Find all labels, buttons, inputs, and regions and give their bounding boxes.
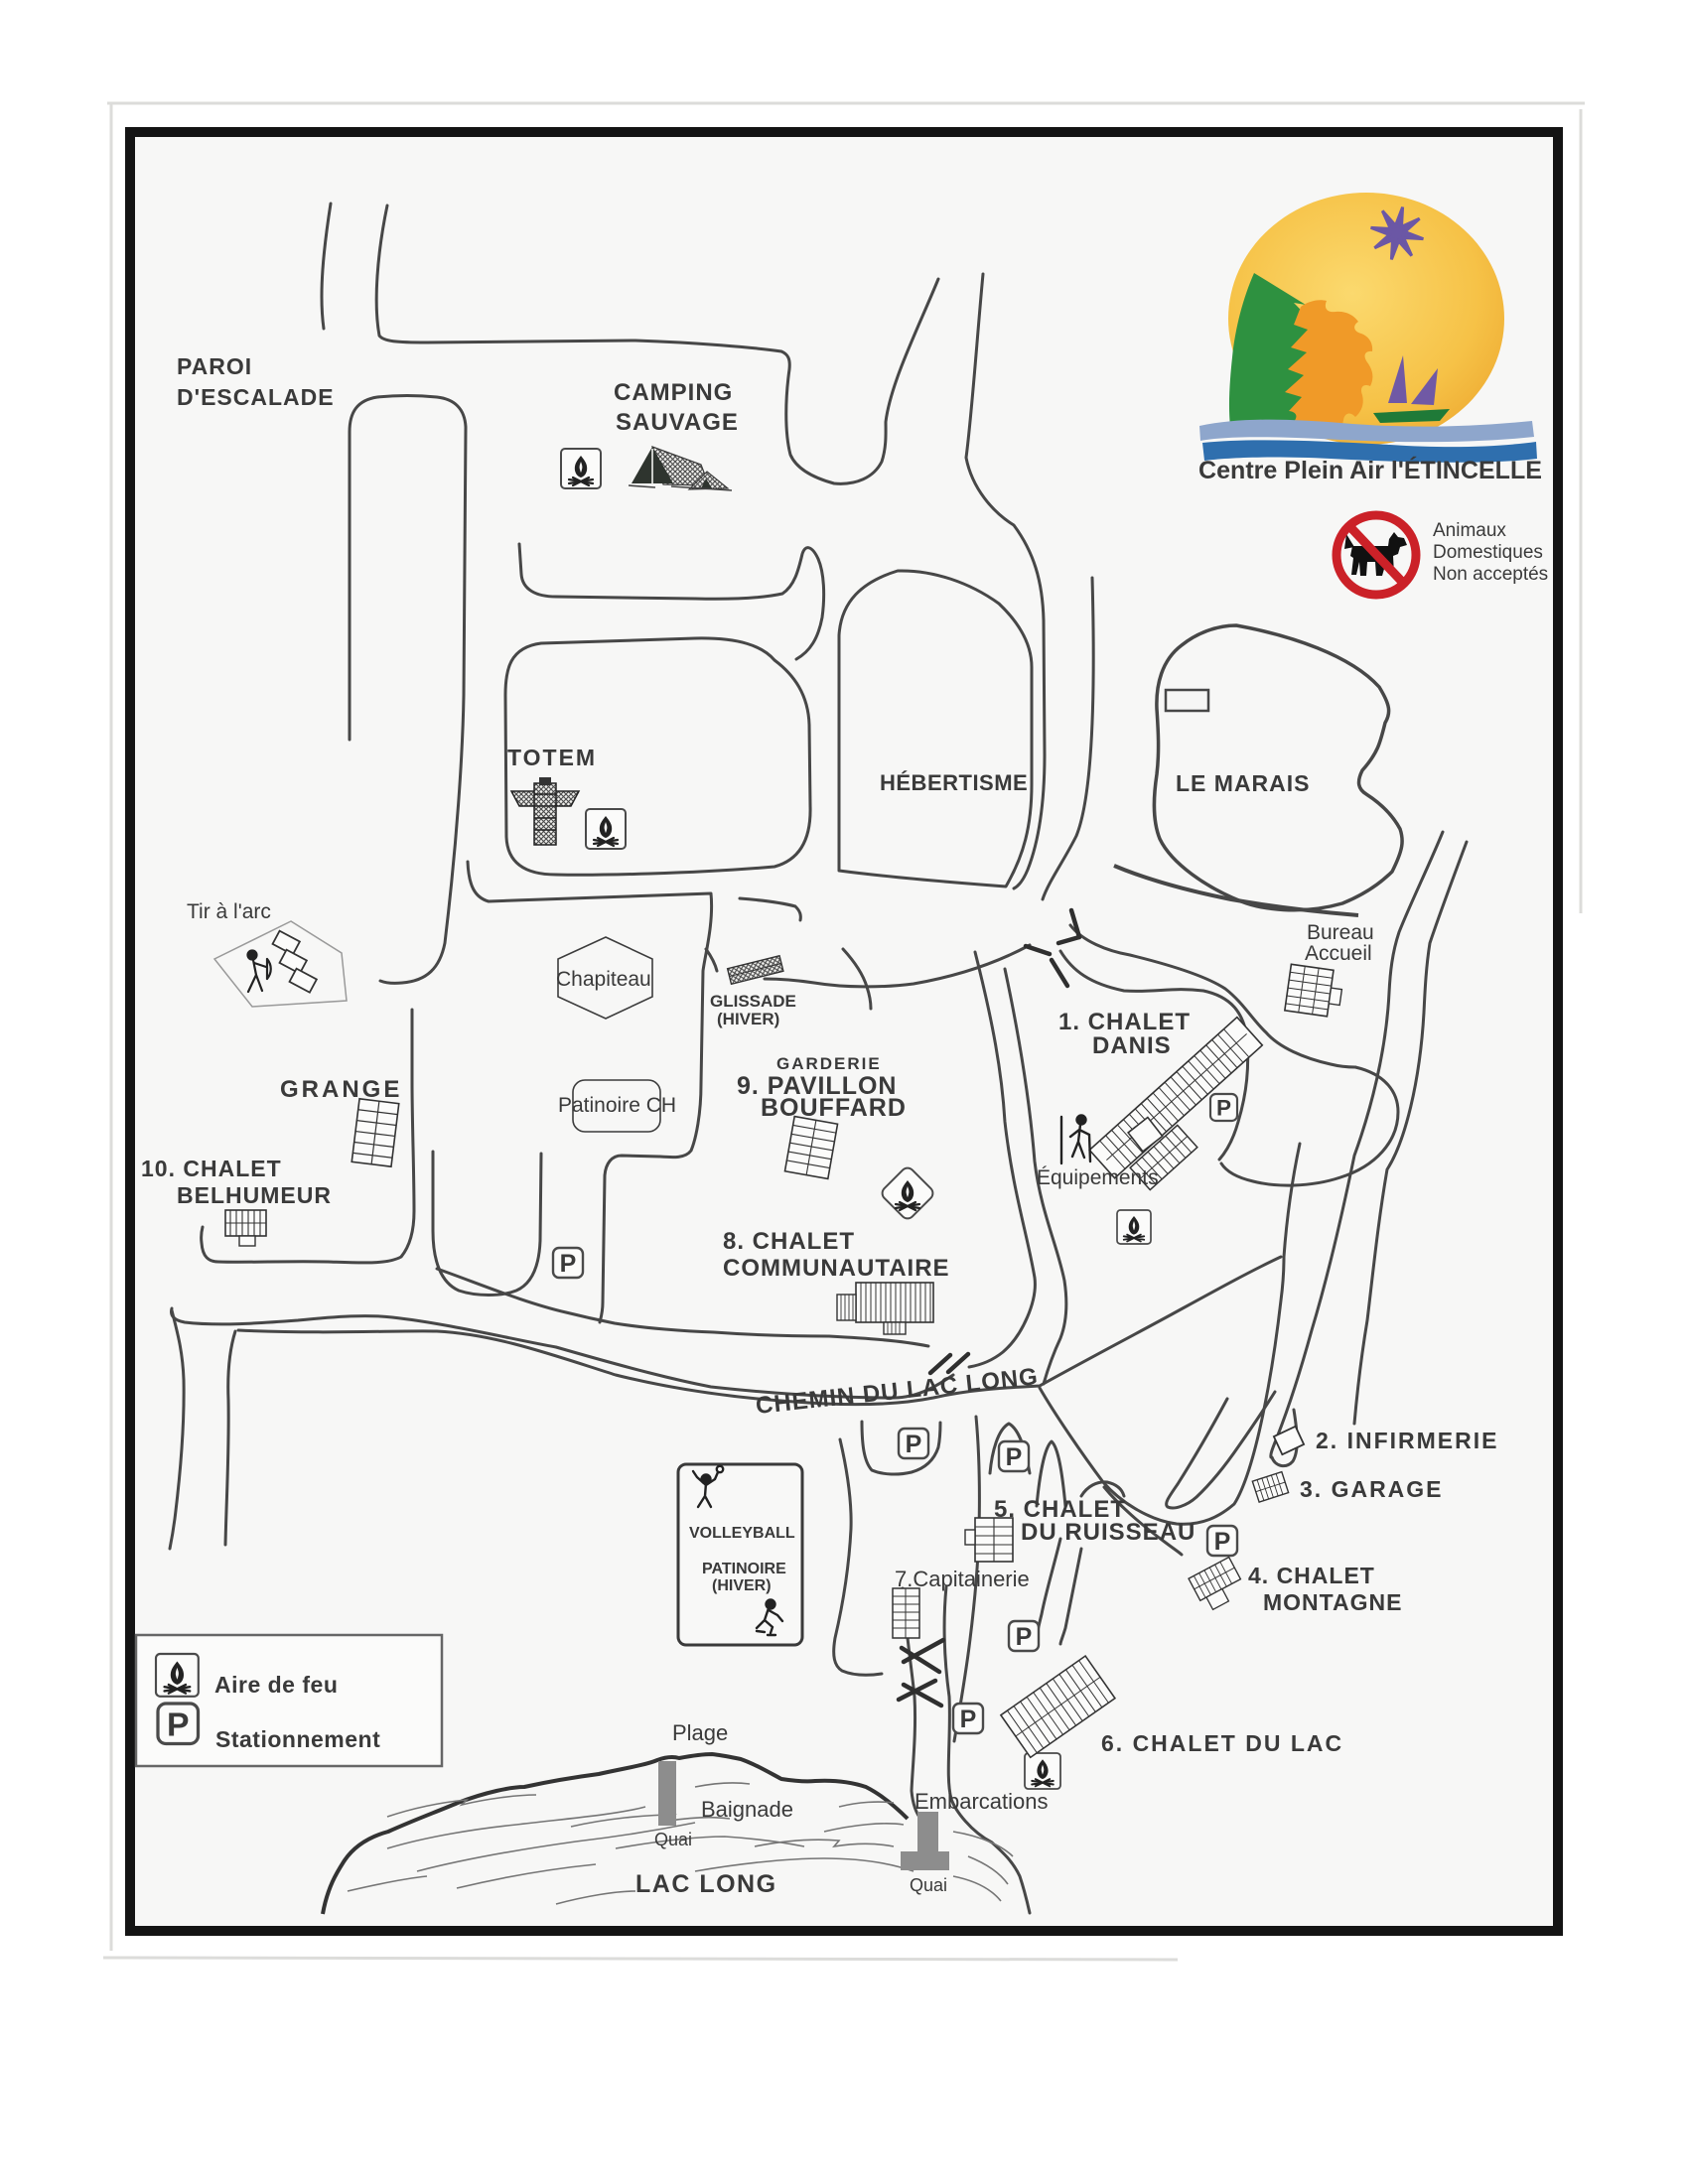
svg-text:Embarcations: Embarcations (914, 1789, 1049, 1814)
svg-text:Aire de feu: Aire de feu (214, 1672, 338, 1698)
svg-text:HÉBERTISME: HÉBERTISME (880, 770, 1028, 795)
svg-text:Domestiques: Domestiques (1433, 542, 1543, 563)
svg-text:D'ESCALADE: D'ESCALADE (177, 384, 335, 410)
svg-text:6. CHALET DU LAC: 6. CHALET DU LAC (1101, 1730, 1343, 1756)
svg-text:DANIS: DANIS (1092, 1032, 1172, 1059)
svg-text:Accueil: Accueil (1305, 942, 1372, 965)
svg-text:TOTEM: TOTEM (507, 745, 597, 770)
svg-text:BELHUMEUR: BELHUMEUR (177, 1182, 332, 1208)
svg-text:SAUVAGE: SAUVAGE (616, 409, 739, 436)
svg-text:2. INFIRMERIE: 2. INFIRMERIE (1316, 1428, 1498, 1453)
svg-text:Quai: Quai (654, 1830, 692, 1849)
svg-text:Animaux: Animaux (1433, 520, 1506, 541)
svg-text:GRANGE: GRANGE (280, 1076, 402, 1103)
svg-text:VOLLEYBALL: VOLLEYBALL (689, 1525, 795, 1542)
svg-text:Stationnement: Stationnement (215, 1726, 380, 1752)
svg-text:8. CHALET: 8. CHALET (723, 1228, 855, 1255)
svg-text:GARDERIE: GARDERIE (776, 1054, 882, 1073)
svg-text:7.Capitainerie: 7.Capitainerie (895, 1567, 1030, 1591)
svg-text:10. CHALET: 10. CHALET (141, 1156, 282, 1181)
svg-text:Équipements: Équipements (1037, 1166, 1159, 1189)
svg-text:COMMUNAUTAIRE: COMMUNAUTAIRE (723, 1255, 950, 1282)
svg-text:Centre Plein Air l'ÉTINCELLE: Centre Plein Air l'ÉTINCELLE (1198, 456, 1542, 484)
svg-text:LE MARAIS: LE MARAIS (1176, 770, 1311, 796)
svg-text:(HIVER): (HIVER) (712, 1577, 772, 1594)
svg-text:Chapiteau: Chapiteau (556, 968, 651, 991)
svg-text:Tir à l'arc: Tir à l'arc (187, 900, 271, 923)
svg-text:3. GARAGE: 3. GARAGE (1300, 1476, 1444, 1502)
svg-text:Quai: Quai (910, 1875, 947, 1895)
svg-text:DU RUISSEAU: DU RUISSEAU (1021, 1519, 1196, 1546)
svg-text:Patinoire CH: Patinoire CH (558, 1094, 676, 1117)
svg-text:CAMPING: CAMPING (614, 379, 733, 406)
svg-text:BOUFFARD: BOUFFARD (761, 1094, 907, 1122)
svg-text:PAROI: PAROI (177, 353, 252, 379)
svg-text:1. CHALET: 1. CHALET (1058, 1009, 1191, 1035)
svg-text:MONTAGNE: MONTAGNE (1263, 1589, 1402, 1615)
svg-text:4. CHALET: 4. CHALET (1248, 1563, 1375, 1588)
svg-text:GLISSADE: GLISSADE (710, 992, 796, 1011)
svg-text:(HIVER): (HIVER) (717, 1010, 779, 1028)
svg-text:Non acceptés: Non acceptés (1433, 564, 1548, 585)
svg-text:LAC LONG: LAC LONG (635, 1870, 777, 1898)
svg-text:PATINOIRE: PATINOIRE (702, 1561, 786, 1577)
svg-text:Plage: Plage (672, 1720, 728, 1745)
svg-text:Bureau: Bureau (1307, 921, 1374, 944)
svg-text:Baignade: Baignade (701, 1797, 793, 1822)
